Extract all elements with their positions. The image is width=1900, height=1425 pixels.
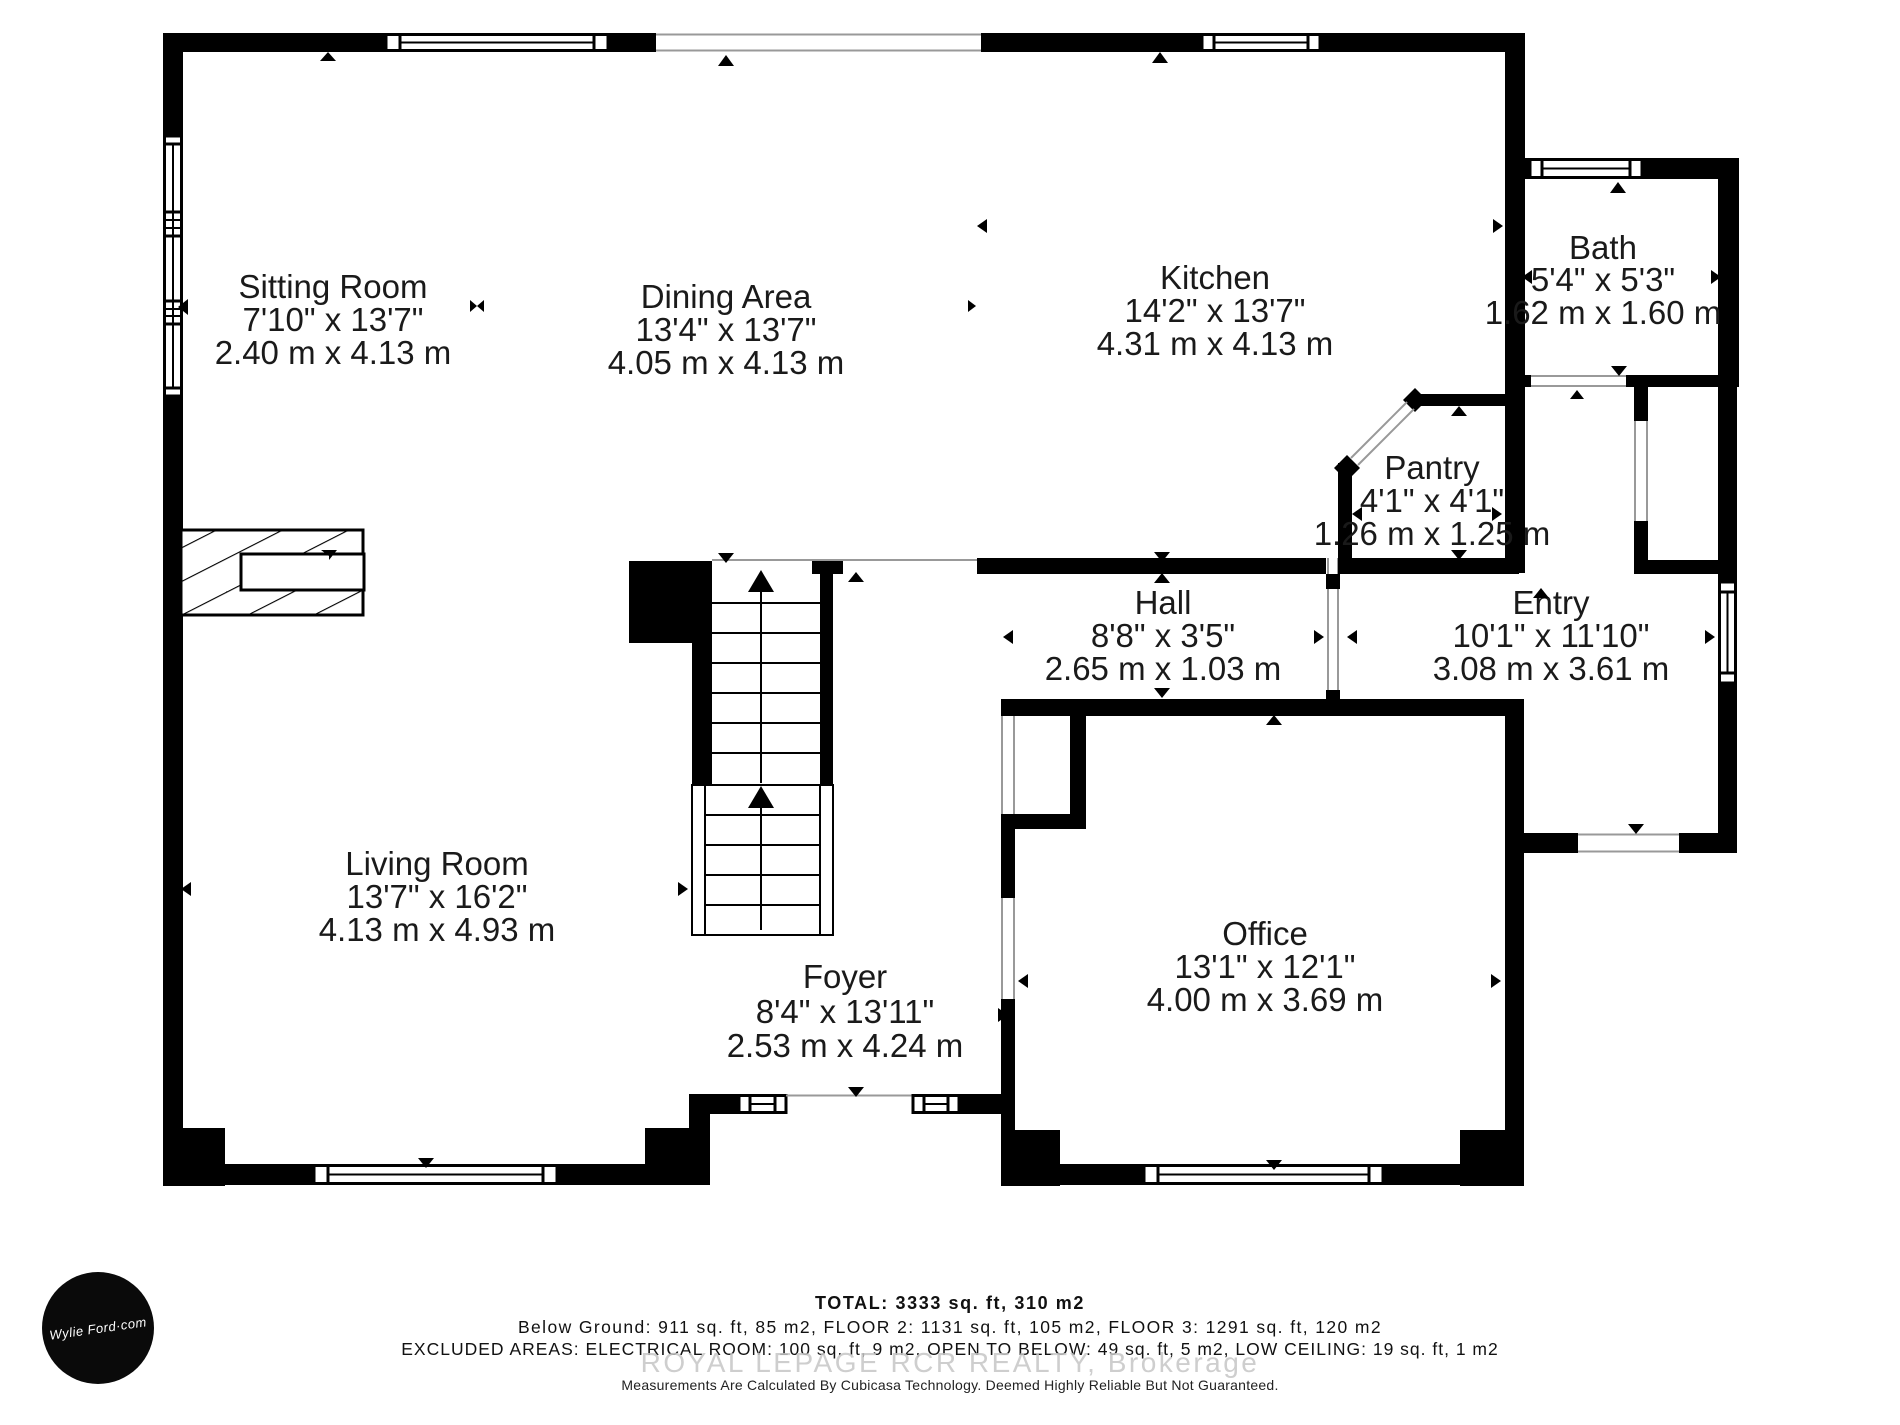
svg-text:2.65 m x 1.03 m: 2.65 m x 1.03 m: [1045, 650, 1282, 687]
svg-text:Measurements Are Calculated By: Measurements Are Calculated By Cubicasa …: [621, 1377, 1278, 1393]
svg-text:4.13 m x 4.93 m: 4.13 m x 4.93 m: [319, 911, 556, 948]
svg-text:1.62 m x 1.60 m: 1.62 m x 1.60 m: [1485, 294, 1722, 331]
svg-text:13'1" x 12'1": 13'1" x 12'1": [1175, 948, 1356, 985]
svg-text:13'4" x 13'7": 13'4" x 13'7": [636, 311, 817, 348]
svg-text:7'10" x 13'7": 7'10" x 13'7": [243, 301, 424, 338]
svg-text:4'1" x 4'1": 4'1" x 4'1": [1360, 482, 1504, 519]
svg-text:Living Room: Living Room: [345, 845, 528, 882]
svg-text:Dining Area: Dining Area: [641, 278, 812, 315]
svg-text:5'4" x 5'3": 5'4" x 5'3": [1531, 261, 1675, 298]
svg-text:Sitting Room: Sitting Room: [239, 268, 428, 305]
svg-text:4.31 m x 4.13 m: 4.31 m x 4.13 m: [1097, 325, 1334, 362]
svg-text:2.53 m x 4.24 m: 2.53 m x 4.24 m: [727, 1027, 964, 1064]
svg-text:Office: Office: [1222, 915, 1308, 952]
svg-text:ROYAL LEPAGE RCR REALTY, Broke: ROYAL LEPAGE RCR REALTY, Brokerage: [641, 1347, 1260, 1378]
svg-text:Foyer: Foyer: [803, 958, 887, 995]
svg-text:1.26 m x 1.25 m: 1.26 m x 1.25 m: [1314, 515, 1551, 552]
svg-text:4.00 m x 3.69 m: 4.00 m x 3.69 m: [1147, 981, 1384, 1018]
svg-text:3.08 m x 3.61 m: 3.08 m x 3.61 m: [1433, 650, 1670, 687]
svg-text:14'2" x 13'7": 14'2" x 13'7": [1125, 292, 1306, 329]
svg-text:Pantry: Pantry: [1384, 449, 1480, 486]
svg-text:13'7" x 16'2": 13'7" x 16'2": [347, 878, 528, 915]
svg-text:8'8" x 3'5": 8'8" x 3'5": [1091, 617, 1235, 654]
svg-text:Kitchen: Kitchen: [1160, 259, 1270, 296]
svg-text:2.40 m x 4.13 m: 2.40 m x 4.13 m: [215, 334, 452, 371]
svg-text:8'4" x 13'11": 8'4" x 13'11": [756, 993, 935, 1030]
svg-text:Hall: Hall: [1135, 584, 1192, 621]
svg-text:4.05 m x 4.13 m: 4.05 m x 4.13 m: [608, 344, 845, 381]
svg-text:Entry: Entry: [1512, 584, 1590, 621]
svg-text:10'1" x 11'10": 10'1" x 11'10": [1453, 617, 1650, 654]
svg-text:TOTAL: 3333 sq. ft, 310 m2: TOTAL: 3333 sq. ft, 310 m2: [815, 1293, 1085, 1313]
svg-text:Below Ground: 911 sq. ft, 85 m: Below Ground: 911 sq. ft, 85 m2, FLOOR 2…: [518, 1317, 1382, 1337]
